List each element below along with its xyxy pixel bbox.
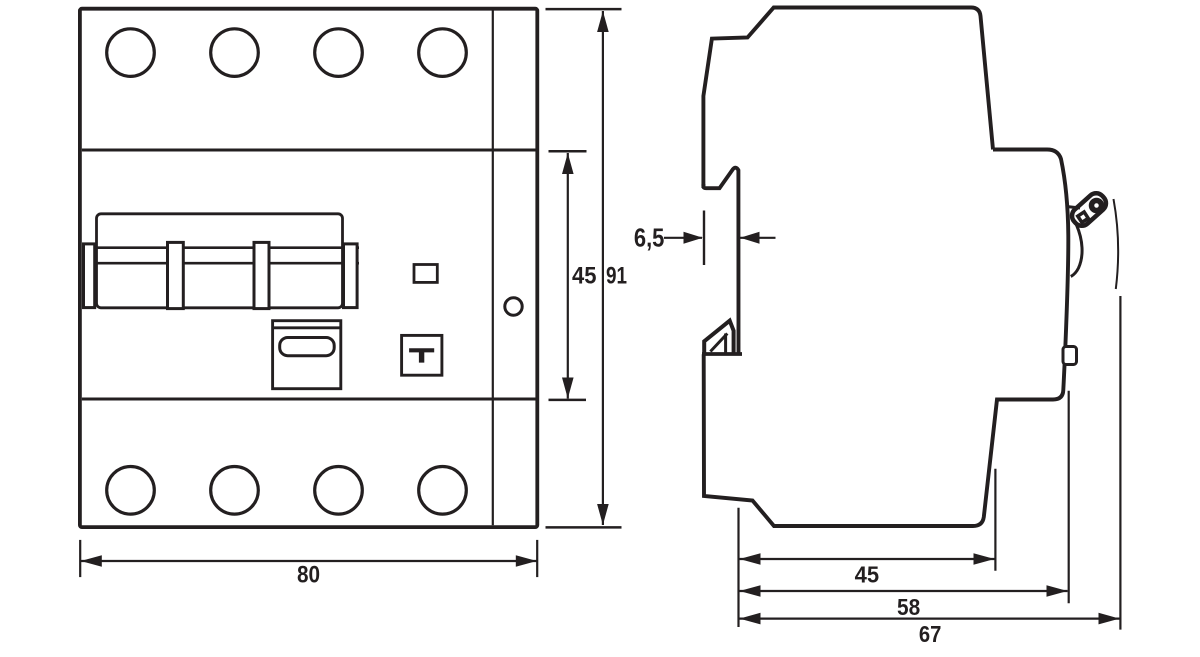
svg-text:58: 58	[897, 594, 920, 620]
svg-text:67: 67	[919, 621, 942, 647]
svg-text:45: 45	[572, 262, 597, 289]
svg-text:45: 45	[855, 562, 880, 588]
svg-text:6,5: 6,5	[634, 222, 665, 252]
svg-text:80: 80	[297, 561, 320, 588]
svg-text:91: 91	[606, 262, 627, 289]
